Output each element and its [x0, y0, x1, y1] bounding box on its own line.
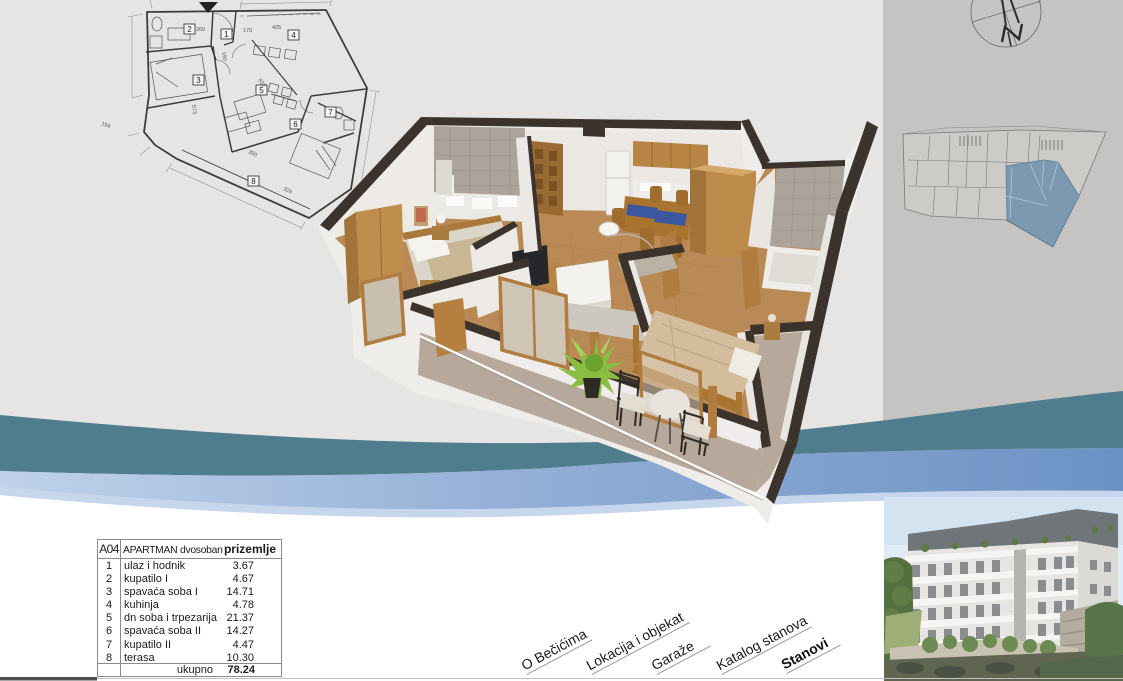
svg-text:4: 4 — [291, 31, 296, 40]
svg-text:2: 2 — [187, 25, 192, 34]
svg-text:8: 8 — [251, 177, 256, 186]
svg-text:3: 3 — [196, 76, 201, 85]
svg-text:573: 573 — [190, 105, 197, 115]
svg-text:6: 6 — [293, 120, 298, 129]
svg-text:7: 7 — [328, 108, 333, 117]
svg-text:260: 260 — [196, 27, 205, 33]
svg-text:425: 425 — [272, 25, 281, 31]
svg-text:1: 1 — [224, 30, 229, 39]
svg-text:170: 170 — [243, 28, 252, 34]
